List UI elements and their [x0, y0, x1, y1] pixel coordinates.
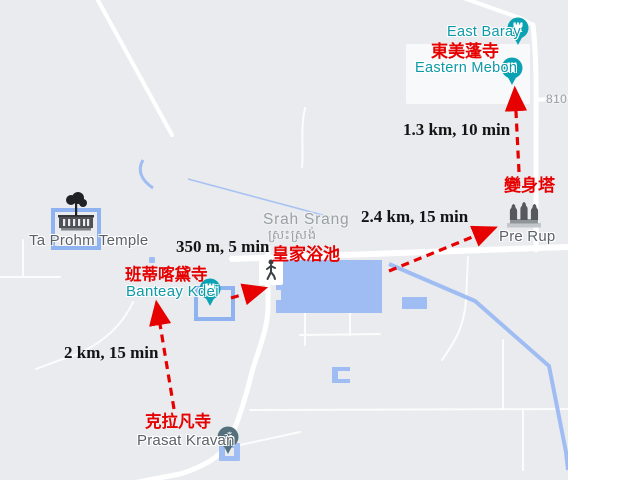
route-arrow-2km	[157, 306, 174, 409]
pre-rup-chinese-label: 變身塔	[504, 177, 555, 195]
route-label-2-4km: 2.4 km, 15 min	[361, 208, 468, 226]
prasat-kravan-chinese-label: 克拉凡寺	[145, 413, 211, 430]
banteay-kdei-chinese-label: 班蒂喀黛寺	[125, 266, 208, 283]
route-label-2km: 2 km, 15 min	[64, 344, 158, 362]
prasat-kravan-label[interactable]: Prasat Kravan	[137, 433, 235, 449]
map-screenshot: ॐ East Baray 東美蓬寺 Eastern Mebon 810 變身塔 …	[0, 0, 639, 480]
east-baray-label[interactable]: East Baray	[447, 25, 521, 40]
tree-icon	[66, 192, 87, 216]
srah-srang-label[interactable]: Srah Srang	[263, 212, 349, 228]
right-margin	[568, 0, 639, 480]
banteay-kdei-label[interactable]: Banteay Kdei	[126, 284, 219, 300]
pre-rup-temple-icon[interactable]	[507, 202, 541, 228]
ta-prohm-label[interactable]: Ta Prohm Temple	[29, 233, 148, 249]
srah-srang-reservoir	[276, 260, 382, 313]
water-features	[53, 160, 568, 470]
srah-srang-chinese-label: 皇家浴池	[272, 246, 340, 264]
srah-srang-khmer-label: ស្រះស្រង់	[268, 228, 317, 242]
eastern-mebon-label[interactable]: Eastern Mebon	[415, 61, 517, 76]
canal	[389, 264, 568, 470]
route-label-1-3km: 1.3 km, 10 min	[403, 121, 510, 139]
pre-rup-label[interactable]: Pre Rup	[499, 229, 555, 245]
eastern-mebon-chinese-label: 東美蓬寺	[431, 43, 499, 61]
map-canvas[interactable]: ॐ East Baray 東美蓬寺 Eastern Mebon 810 變身塔 …	[0, 0, 568, 480]
route-arrow-350m	[231, 289, 262, 298]
road-810-label: 810	[546, 93, 567, 106]
route-label-350m: 350 m, 5 min	[176, 238, 270, 256]
